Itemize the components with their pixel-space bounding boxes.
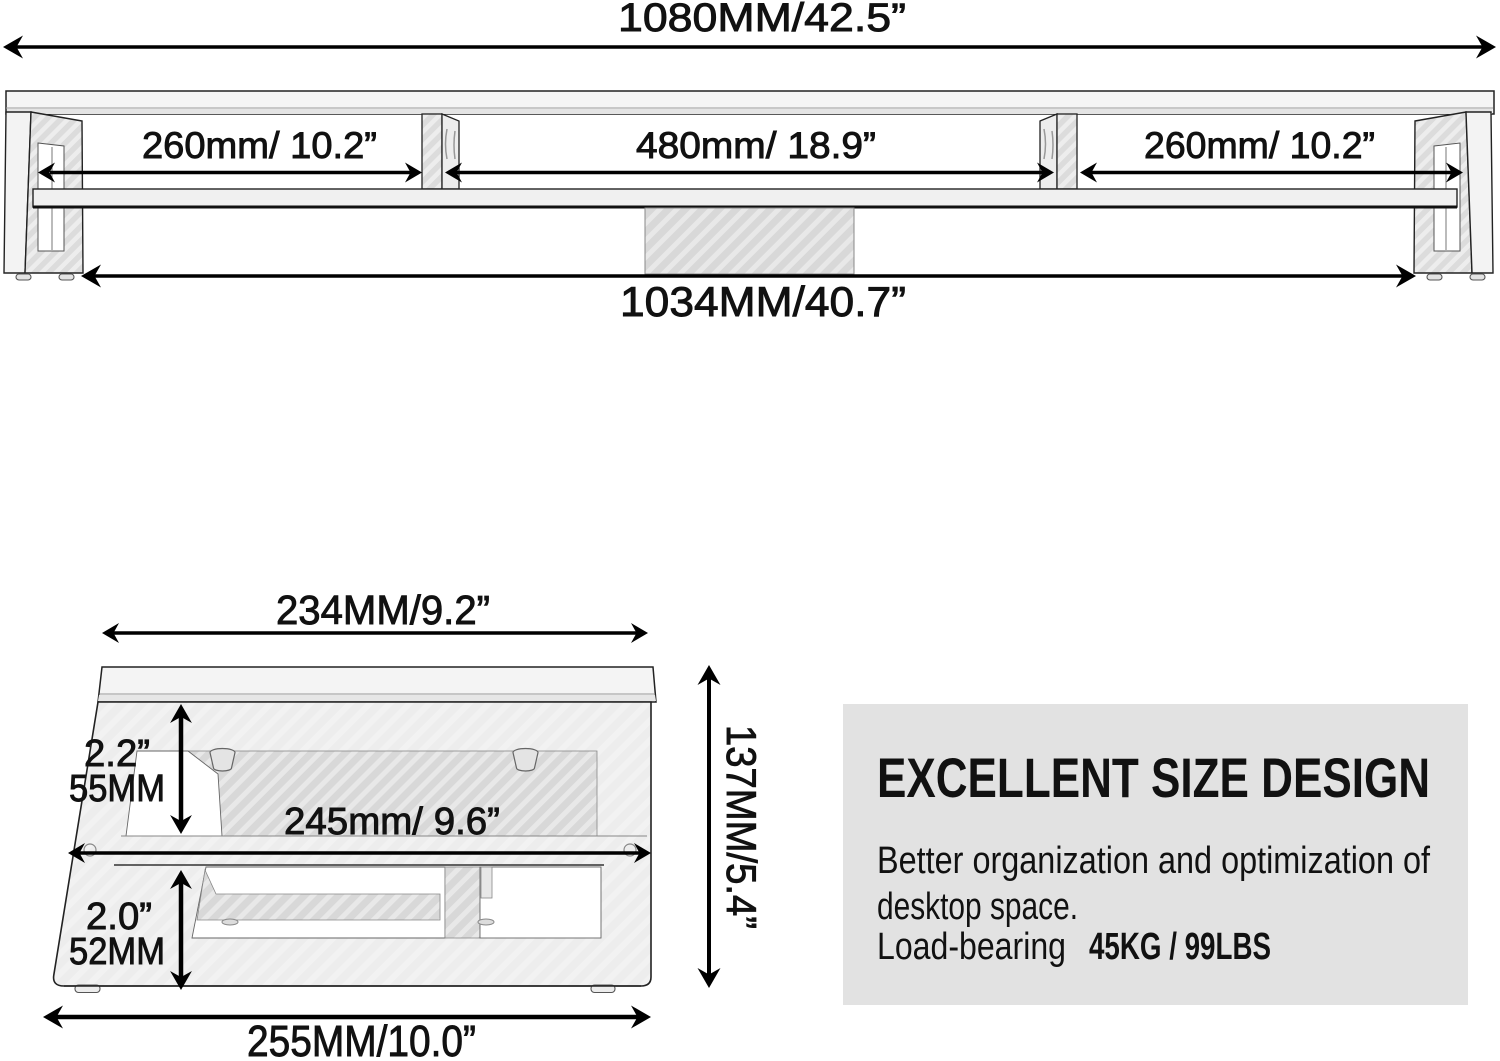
svg-text:245mm/ 9.6”: 245mm/ 9.6” [284, 801, 500, 843]
svg-text:45KG / 99LBS: 45KG / 99LBS [1089, 926, 1271, 968]
svg-text:Better organization and optimi: Better organization and optimization of [877, 840, 1430, 882]
svg-text:55MM: 55MM [69, 768, 165, 810]
svg-text:Load-bearing: Load-bearing [877, 926, 1066, 968]
svg-text:desktop space.: desktop space. [877, 886, 1078, 928]
svg-text:255MM/10.0”: 255MM/10.0” [247, 1017, 476, 1061]
svg-text:480mm/ 18.9”: 480mm/ 18.9” [636, 125, 876, 166]
svg-text:EXCELLENT SIZE DESIGN: EXCELLENT SIZE DESIGN [877, 746, 1430, 809]
svg-text:1080MM/42.5”: 1080MM/42.5” [618, 0, 906, 40]
svg-text:1034MM/40.7”: 1034MM/40.7” [620, 278, 906, 325]
svg-text:52MM: 52MM [69, 931, 165, 973]
svg-text:260mm/ 10.2”: 260mm/ 10.2” [1144, 125, 1375, 166]
svg-text:137MM/5.4”: 137MM/5.4” [718, 725, 765, 929]
svg-text:234MM/9.2”: 234MM/9.2” [276, 587, 490, 633]
svg-text:260mm/ 10.2”: 260mm/ 10.2” [142, 125, 377, 166]
